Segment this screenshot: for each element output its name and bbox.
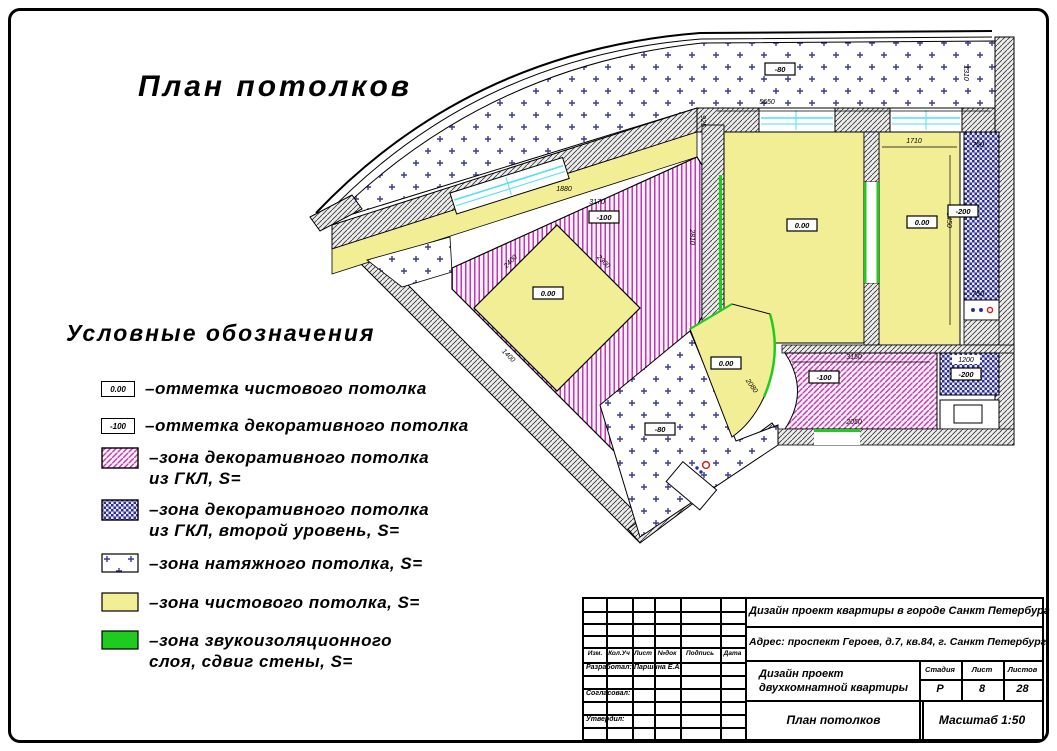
elevation-mark-living-right: -100 [809, 371, 839, 383]
title-block: Изм. Кол.Уч Лист №док Подпись Дата Разра… [582, 597, 1044, 741]
sheets-label: Листов [1003, 665, 1042, 674]
elevation-mark-central-zone: -100 [589, 211, 619, 223]
developer-name: Паршина Е.А. [634, 664, 681, 671]
soundproof-line-gap-left [864, 182, 867, 283]
grid-line [720, 599, 722, 739]
dimension-label: 750 [972, 291, 984, 298]
light-fixture-icon [979, 308, 983, 312]
stage-value: Р [919, 683, 961, 695]
elevation-mark-hall: -80 [645, 423, 675, 435]
svg-text:-200: -200 [958, 370, 974, 379]
svg-text:-100: -100 [816, 373, 832, 382]
svg-text:-80: -80 [655, 425, 667, 434]
svg-text:0.00: 0.00 [719, 359, 734, 368]
grid-line [745, 626, 1042, 628]
soundproof-line-gap-right [877, 182, 880, 283]
elevation-mark-arc-room: 0.00 [711, 357, 741, 369]
light-fixture-icon [703, 462, 710, 469]
ceiling-plan-drawing: 5650 1310 925 1710 750 3450 750 1880 317… [302, 25, 1017, 570]
developed-label: Разработал: [586, 664, 632, 671]
dimension-label: 1200 [958, 357, 974, 364]
sheets-value: 28 [1003, 683, 1042, 695]
grid-line [584, 727, 745, 729]
doc-title-line2: двухкомнатной квартиры [759, 682, 919, 694]
elevation-mark-sample: -100 [101, 418, 135, 434]
grid-line [584, 675, 745, 677]
grid-line [584, 647, 745, 649]
dimension-label: 3170 [589, 199, 605, 206]
magenta-hatch-swatch [101, 447, 139, 469]
grid-line [919, 679, 1042, 681]
grid-line [584, 701, 745, 703]
light-fixture-icon [695, 466, 698, 469]
elevation-mark-second-level-right: -200 [951, 368, 981, 380]
sheet-value: 8 [961, 683, 1003, 695]
living-decor-zone [785, 353, 937, 429]
light-fixture-icon [987, 307, 992, 312]
svg-text:-200: -200 [955, 207, 971, 216]
svg-text:-80: -80 [775, 65, 787, 74]
light-fixture-icon [699, 470, 702, 473]
col-ndok: №док [654, 650, 680, 657]
col-list: Лист [632, 650, 654, 657]
dimension-label: 1710 [906, 138, 922, 145]
grid-line [745, 660, 1042, 662]
svg-text:-100: -100 [596, 213, 612, 222]
yellow-swatch [101, 592, 139, 612]
window-bedroom-right [890, 108, 962, 132]
window-bedroom-left [759, 108, 835, 132]
dimension-label: 5650 [759, 99, 775, 106]
doc-title-line1: Дизайн проект [759, 668, 919, 680]
grid-line [584, 623, 745, 625]
grid-line [584, 611, 745, 613]
elevation-mark-island: 0.00 [533, 287, 563, 299]
svg-text:0.00: 0.00 [915, 218, 930, 227]
soundproof-line-bottom [814, 429, 860, 432]
address-line: Адрес: проспект Героев, д.7, кв.84, г. С… [749, 636, 1039, 648]
wall-strip-bottom [964, 320, 999, 345]
stage-label: Стадия [919, 665, 961, 674]
dimension-label: 1880 [556, 186, 572, 193]
legend-item-label: –зона чистового потолка, S= [149, 592, 420, 613]
dimension-label: 925 [699, 115, 706, 127]
col-data: Дата [720, 650, 745, 657]
wall-living-top [782, 345, 1014, 353]
wall-bottom [772, 429, 1014, 445]
svg-text:0.00: 0.00 [541, 289, 556, 298]
dimension-label: 1310 [962, 65, 969, 81]
legend-item-soundproof-zone: –зона звукоизоляционногослоя, сдвиг стен… [101, 630, 392, 672]
light-fixture-icon [971, 308, 975, 312]
col-koluch: Кол.Уч [606, 650, 632, 657]
drawing-sheet: { "page": { "main_title": "План потолков… [0, 0, 1057, 751]
grid-line [584, 635, 745, 637]
grid-line [745, 700, 1042, 702]
col-izm: Изм. [584, 650, 606, 657]
drawing-name: План потолков [745, 713, 922, 727]
agreed-label: Согласовал: [586, 690, 630, 697]
scale-text: Масштаб 1:50 [922, 713, 1042, 727]
elevation-mark-bedroom-right: 0.00 [907, 216, 937, 228]
plus-pattern-swatch [101, 553, 139, 573]
elevation-mark-sample: 0.00 [101, 381, 135, 397]
dimension-label: 2810 [688, 228, 695, 245]
project-line: Дизайн проект квартиры в городе Санкт Пе… [749, 605, 1039, 617]
approved-label: Утвердил: [586, 716, 624, 723]
partition-wall-bottom [864, 283, 879, 345]
navy-cross-swatch [101, 499, 139, 521]
elevation-mark-balcony: -80 [765, 63, 795, 75]
bathtub [954, 405, 982, 423]
partition-wall-top [864, 132, 879, 182]
green-swatch [101, 630, 139, 650]
legend-item-finished-zone: –зона чистового потолка, S= [101, 592, 420, 613]
dimension-label: 3150 [846, 354, 862, 361]
elevation-mark-bedroom-left: 0.00 [787, 219, 817, 231]
svg-text:0.00: 0.00 [795, 221, 810, 230]
col-podpis: Подпись [680, 650, 720, 657]
sheet-label: Лист [961, 665, 1003, 674]
bedroom-right [879, 132, 960, 345]
elevation-mark-strip-right: -200 [948, 205, 978, 217]
legend-item-label: –зона звукоизоляционногослоя, сдвиг стен… [149, 630, 392, 672]
dimension-label: 750 [972, 142, 984, 149]
dimension-label: 2050 [845, 419, 862, 426]
